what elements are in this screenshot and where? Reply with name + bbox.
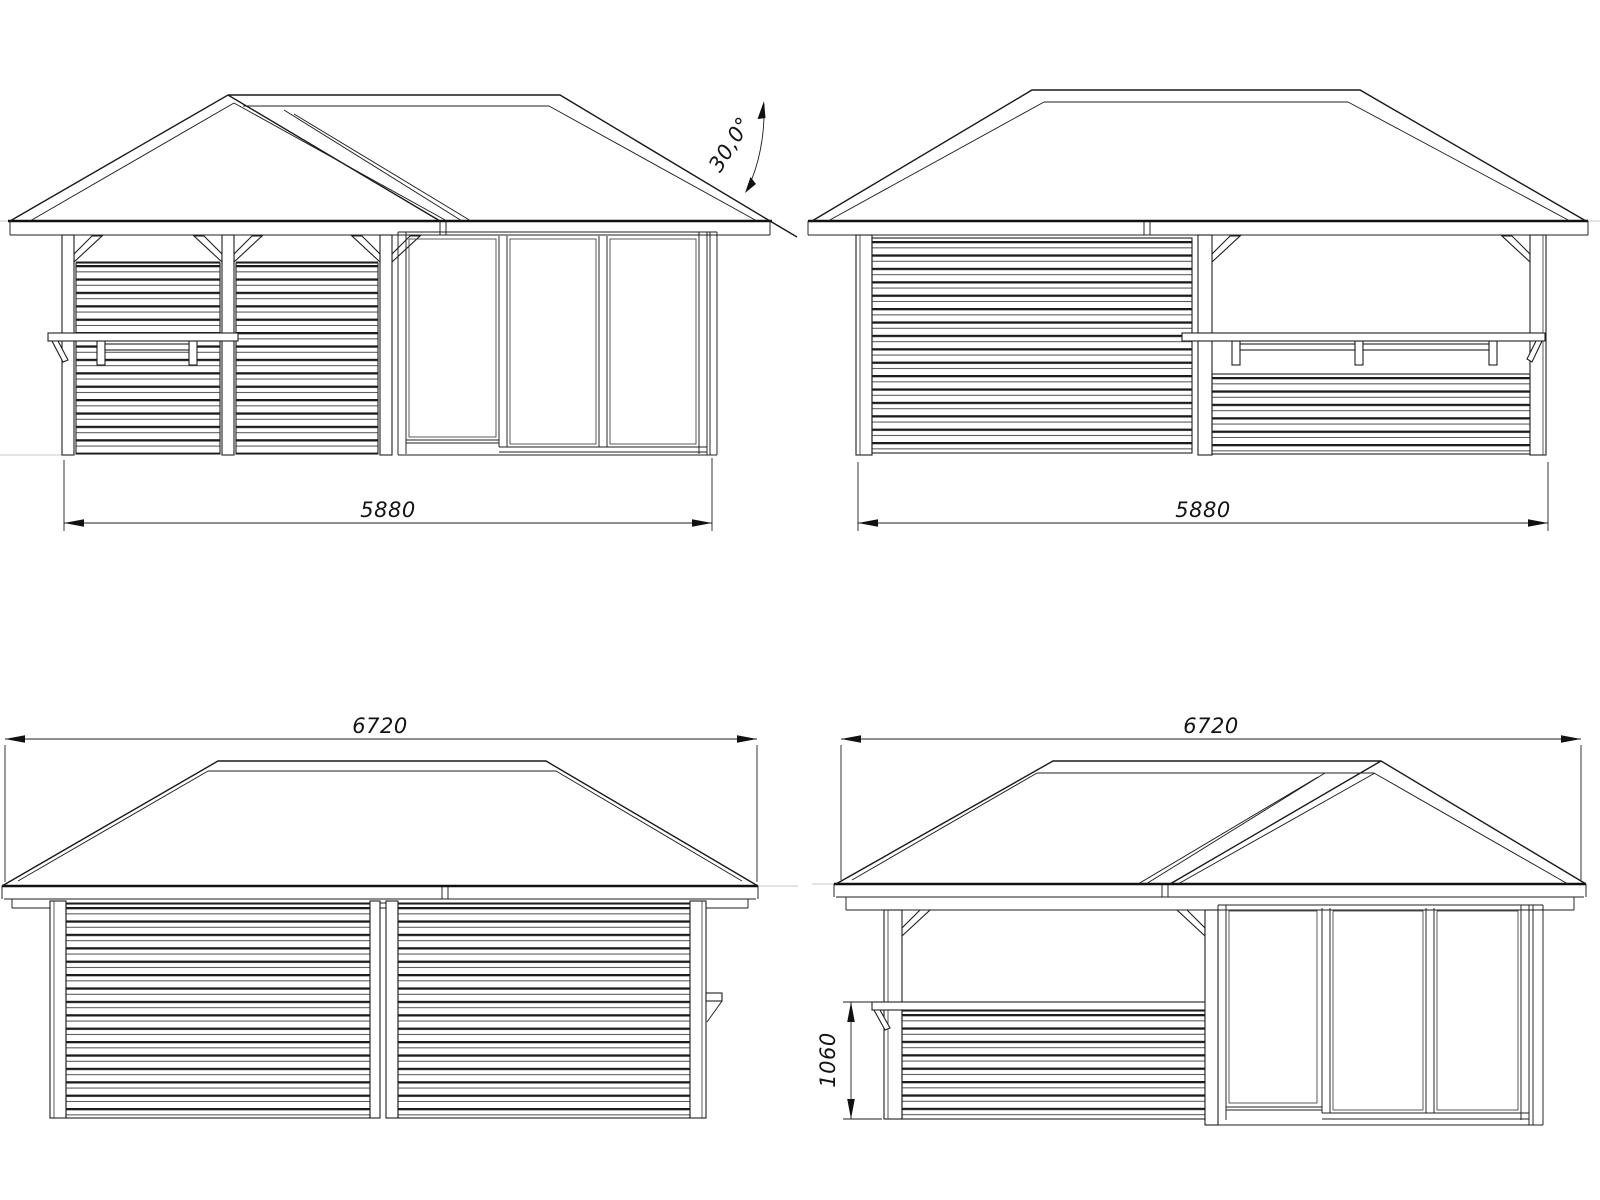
glass-pane (1437, 911, 1518, 1110)
glazing-frame (398, 232, 717, 455)
counter-hanger (189, 341, 197, 365)
post (380, 235, 392, 455)
dimension-arrow (847, 1002, 855, 1022)
roof-outline (812, 90, 1586, 221)
knee-brace (352, 236, 380, 262)
post (62, 235, 74, 455)
post (222, 235, 234, 455)
glazing-frame (1218, 905, 1543, 1125)
corner-post (856, 235, 872, 455)
width-dimension: 6720 (841, 714, 1581, 880)
roof-angle-label: 30,0° (704, 113, 756, 176)
back-elevation-view: 5880 (808, 90, 1600, 531)
counter-rail (1363, 344, 1489, 350)
width-dimension-label: 5880 (360, 498, 415, 522)
dimension-arrow (858, 519, 878, 527)
dimension-lines (841, 739, 1581, 880)
post (386, 901, 398, 1118)
dimension-arrow (64, 519, 84, 527)
corner-post (690, 901, 706, 1118)
technical-drawing-canvas: 5880 30,0° (0, 0, 1600, 1200)
angle-arrow (745, 177, 756, 193)
counter-height-dimension: 1060 (816, 1002, 882, 1119)
roof (8, 95, 797, 237)
slatted-half-wall (1212, 374, 1530, 454)
knee-brace (1212, 236, 1240, 262)
walls (50, 901, 722, 1118)
walls (872, 910, 1218, 1125)
roof-detail-lines (2, 771, 758, 908)
roof (808, 90, 1588, 235)
knee-brace (902, 910, 930, 936)
roof-detail-lines (834, 773, 1586, 910)
knee-brace (74, 236, 102, 262)
roof-outline (10, 95, 797, 237)
post (1198, 235, 1212, 455)
knee-brace (1177, 910, 1205, 936)
counter-height-label: 1060 (816, 1032, 840, 1087)
dimension-arrow (1528, 519, 1548, 527)
counter-rail (105, 344, 189, 350)
width-dimension-label: 6720 (352, 714, 407, 738)
glass-pane (510, 239, 596, 444)
slatted-wall-panel (872, 238, 1192, 453)
counter-shelf (1182, 333, 1545, 341)
width-dimension: 5880 (64, 458, 712, 531)
dimension-arrow (737, 735, 757, 743)
knee-brace (1502, 236, 1530, 262)
glass-pane (1229, 911, 1317, 1103)
counter-shelf (872, 1002, 1216, 1010)
counter-hanger (1355, 341, 1363, 365)
counter-hanger (97, 341, 105, 365)
roof (834, 761, 1586, 910)
post (884, 910, 902, 1119)
roof-detail-lines (10, 103, 770, 235)
knee-brace (194, 236, 222, 262)
counter-hanger (1232, 341, 1240, 365)
slatted-wall-panel (66, 904, 370, 1118)
post (1205, 910, 1218, 1125)
right-side-elevation-view: 6720 1060 (812, 714, 1586, 1125)
glazed-wall (1218, 905, 1543, 1125)
counter-rail (1240, 344, 1355, 350)
dimension-arrow (1561, 735, 1581, 743)
left-side-elevation-view: 6720 (2, 714, 798, 1118)
width-dimension-label: 5880 (1175, 498, 1230, 522)
front-elevation-view: 5880 30,0° (0, 95, 797, 531)
glass-pane (610, 239, 696, 444)
counter-shelf (48, 333, 238, 341)
slatted-wall-panel (236, 263, 378, 454)
counter-shelf-end (706, 993, 722, 1001)
width-dimension-label: 6720 (1183, 714, 1238, 738)
roof-detail-lines (808, 102, 1588, 235)
glass-pane (1333, 911, 1423, 1110)
dimension-arrow (841, 735, 861, 743)
dimension-arrow (692, 519, 712, 527)
shelf-bracket-profile (707, 1001, 722, 1022)
corner-post (50, 901, 66, 1118)
dimension-arrow (5, 735, 25, 743)
angle-arrow (758, 101, 766, 119)
roof (2, 761, 758, 908)
dimension-arrow (847, 1099, 855, 1119)
counter-hanger (1489, 341, 1497, 365)
glazed-wall (398, 232, 717, 455)
roof-angle-annotation: 30,0° (704, 101, 765, 193)
width-dimension: 5880 (858, 462, 1548, 531)
slatted-half-wall (902, 1011, 1205, 1119)
post (370, 901, 380, 1118)
width-dimension: 6720 (5, 714, 757, 882)
knee-brace (234, 236, 262, 262)
pavilion-elevations-svg: 5880 30,0° (0, 0, 1600, 1200)
glass-pane (409, 239, 496, 437)
slatted-wall-panel (398, 904, 690, 1118)
bar-counter (1182, 333, 1545, 365)
